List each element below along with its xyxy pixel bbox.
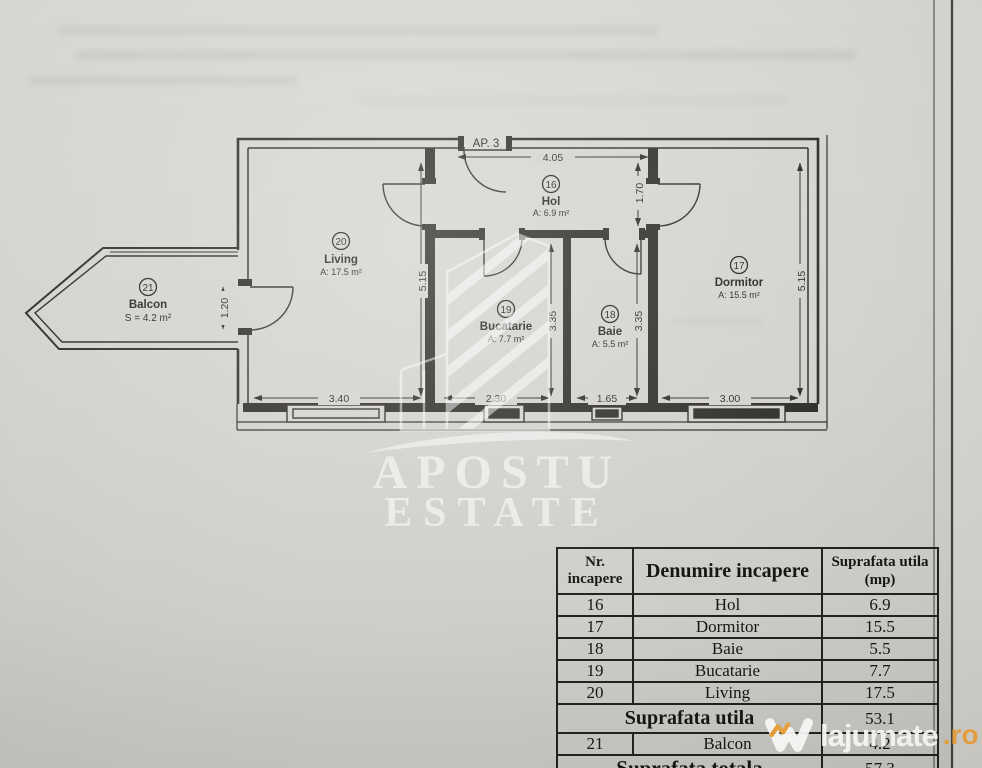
cell-nr: 16 xyxy=(557,594,633,616)
svg-text:Dormitor: Dormitor xyxy=(715,277,764,289)
room-number-badge: 19 xyxy=(500,305,512,316)
room-label-living: 20 Living A: 17.5 m² xyxy=(320,233,362,278)
dim-balcon-door-width: 1.20 xyxy=(219,298,231,319)
summary-row-totala: Suprafata totala 57.3 xyxy=(557,755,938,768)
cell-nr: 20 xyxy=(557,682,633,704)
table-row: 17 Dormitor 15.5 xyxy=(557,616,938,638)
page-edge-lines xyxy=(934,0,982,768)
cell-name: Hol xyxy=(633,594,822,616)
summary-value: 57.3 xyxy=(822,755,938,768)
dim-baie-height: 3.35 xyxy=(633,311,645,332)
dim-hol-width: 4.05 xyxy=(543,152,564,164)
entrance-door xyxy=(464,150,506,192)
watermark-line2: ESTATE xyxy=(384,490,610,536)
dim-dormitor-width: 3.00 xyxy=(720,393,741,405)
room-label-balcon: 21 Balcon S = 4.2 m² xyxy=(125,279,172,325)
cell-name: Bucatarie xyxy=(633,660,822,682)
cell-area: 5.5 xyxy=(822,638,938,660)
scanned-floor-plan-page: 4.05 1.70 5.15 5.15 3.35 3.35 3.40 2.30 … xyxy=(0,0,982,768)
room-number-badge: 20 xyxy=(335,237,347,248)
dim-hol-depth: 1.70 xyxy=(634,183,646,204)
svg-text:AP. 3: AP. 3 xyxy=(473,138,500,150)
table-row: 18 Baie 5.5 xyxy=(557,638,938,660)
room-label-dormitor: 17 Dormitor A: 15.5 m² xyxy=(715,257,764,301)
cell-name: Dormitor xyxy=(633,616,822,638)
area-table: Nr. incapere Denumire incapere Suprafata… xyxy=(556,547,939,768)
bedroom-door xyxy=(658,184,700,226)
balcony-door xyxy=(250,287,293,330)
cell-name: Balcon xyxy=(633,733,822,755)
svg-text:Balcon: Balcon xyxy=(129,299,167,311)
svg-text:A: 17.5 m²: A: 17.5 m² xyxy=(320,267,362,277)
cell-nr: 17 xyxy=(557,616,633,638)
bathroom-door xyxy=(605,238,641,274)
cell-area: 4.2 xyxy=(822,733,938,755)
room-number-badge: 16 xyxy=(545,180,557,191)
dim-living-width: 3.40 xyxy=(329,393,350,405)
summary-value: 53.1 xyxy=(822,704,938,733)
summary-label: Suprafata totala xyxy=(557,755,822,768)
apartment-label: AP. 3 xyxy=(473,138,500,150)
header-denumire-incapere: Denumire incapere xyxy=(633,548,822,594)
table-row: 19 Bucatarie 7.7 xyxy=(557,660,938,682)
cell-name: Living xyxy=(633,682,822,704)
apostu-estate-wordmark: APOSTU ESTATE xyxy=(373,446,622,536)
cell-area: 6.9 xyxy=(822,594,938,616)
cell-nr: 21 xyxy=(557,733,633,755)
cell-area: 7.7 xyxy=(822,660,938,682)
svg-text:A: 5.5 m²: A: 5.5 m² xyxy=(592,339,629,349)
cell-area: 15.5 xyxy=(822,616,938,638)
room-number-badge: 21 xyxy=(142,283,154,294)
room-number-badge: 17 xyxy=(733,261,745,272)
table-row: 20 Living 17.5 xyxy=(557,682,938,704)
svg-text:Living: Living xyxy=(324,254,358,266)
svg-text:Hol: Hol xyxy=(542,196,561,208)
svg-text:Baie: Baie xyxy=(598,326,622,338)
cell-nr: 18 xyxy=(557,638,633,660)
cell-name: Baie xyxy=(633,638,822,660)
dim-living-height: 5.15 xyxy=(417,271,429,292)
bathroom-window xyxy=(592,407,622,420)
dim-baie-width: 1.65 xyxy=(597,393,618,405)
cell-nr: 19 xyxy=(557,660,633,682)
svg-text:A: 6.9 m²: A: 6.9 m² xyxy=(533,208,570,218)
room-label-hol: 16 Hol A: 6.9 m² xyxy=(533,176,570,219)
table-row-balcon: 21 Balcon 4.2 xyxy=(557,733,938,755)
room-label-baie: 18 Baie A: 5.5 m² xyxy=(592,306,629,350)
header-suprafata-utila: Suprafata utila (mp) xyxy=(822,548,938,594)
living-door xyxy=(383,184,425,226)
living-window xyxy=(287,405,385,422)
svg-text:S = 4.2 m²: S = 4.2 m² xyxy=(125,313,172,324)
svg-text:A: 15.5 m²: A: 15.5 m² xyxy=(718,290,760,300)
cell-area: 17.5 xyxy=(822,682,938,704)
header-nr-incapere: Nr. incapere xyxy=(557,548,633,594)
summary-label: Suprafata utila xyxy=(557,704,822,733)
room-number-badge: 18 xyxy=(604,310,616,321)
table-row: 16 Hol 6.9 xyxy=(557,594,938,616)
summary-row-utila: Suprafata utila 53.1 xyxy=(557,704,938,733)
dim-dormitor-height: 5.15 xyxy=(796,271,808,292)
building-icon xyxy=(401,209,560,458)
bedroom-window xyxy=(688,405,785,422)
